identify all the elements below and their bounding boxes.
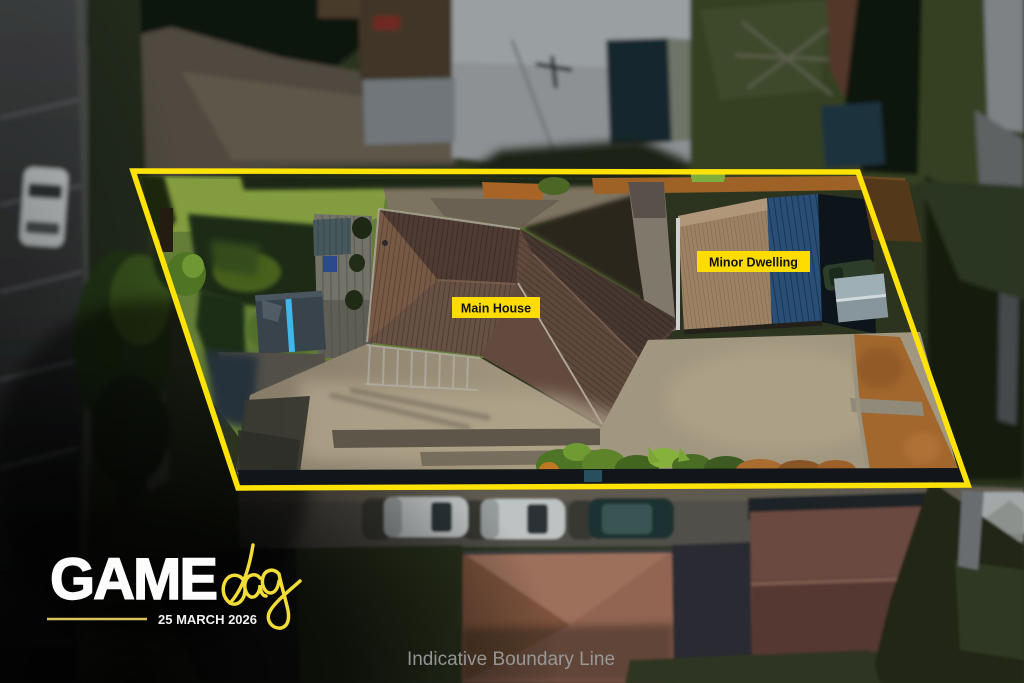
svg-text:Indicative Boundary Line: Indicative Boundary Line xyxy=(407,649,615,670)
svg-text:Main House: Main House xyxy=(461,302,531,316)
svg-text:GAME: GAME xyxy=(50,547,216,612)
svg-text:Minor Dwelling: Minor Dwelling xyxy=(709,256,798,270)
svg-text:25 MARCH 2026: 25 MARCH 2026 xyxy=(158,612,257,627)
